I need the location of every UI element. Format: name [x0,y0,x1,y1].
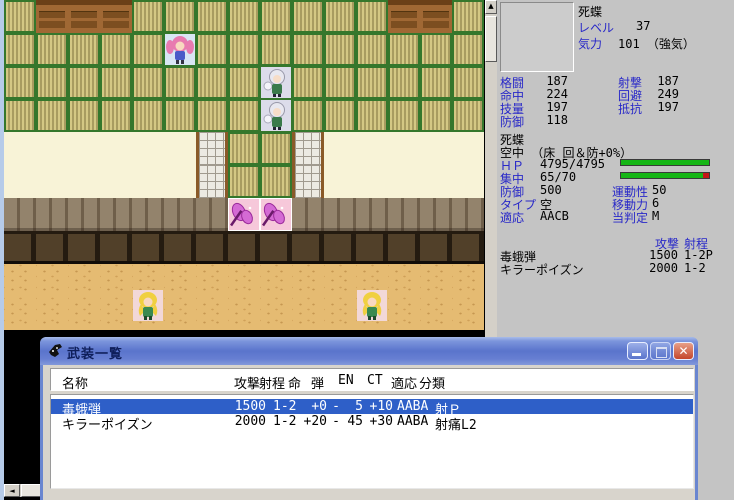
en-bar-empty [703,173,709,178]
map-tile-sand[interactable] [388,264,420,297]
weapon-window: 武装一覧 ✕ 名称攻撃射程命弾ENCT適応分類 毒蛾弾15001-2+0-5+1… [40,337,698,500]
map-tile-chest[interactable] [36,0,68,33]
detail-value: 50 [652,183,666,197]
map-tile-wall-base[interactable] [356,231,388,264]
map-tile-wall-base[interactable] [132,231,164,264]
map-tile-tatami[interactable] [324,0,356,33]
map-tile-tatami[interactable] [228,99,260,132]
map-tile-sand[interactable] [420,297,452,330]
cell-ammo: - [329,399,343,414]
map-tile-tatami[interactable] [228,165,260,198]
stat-value: 197 [643,100,679,114]
map-tile-tatami[interactable] [260,33,292,66]
map-tile-shoji[interactable] [164,132,196,165]
header-cell[interactable]: EN [338,373,354,388]
morale-label: 気力 [578,35,602,52]
stat-value: 187 [643,74,679,88]
map-tile-tatami[interactable] [68,33,100,66]
map-tile-tatami[interactable] [228,132,260,165]
weapon-summary-name: キラーポイズン [500,261,584,278]
map-tile-sand[interactable] [420,264,452,297]
cell-hit: +20 [299,414,327,429]
cell-class: 射痛L2 [435,414,515,433]
map-tile-tatami[interactable] [388,99,420,132]
map-tile-tatami[interactable] [4,99,36,132]
map-tile-sand[interactable] [4,297,36,330]
map-tile-wall-base[interactable] [68,231,100,264]
map-tile-tatami[interactable] [4,66,36,99]
map-tile-plank-wall[interactable] [132,198,164,231]
map-tile-shoji[interactable] [420,165,452,198]
map-tile-shoji[interactable] [324,132,356,165]
map-tile-tatami[interactable] [100,99,132,132]
en-bar [620,172,710,179]
weapon-list[interactable]: 毒蛾弾15001-2+0-5+10AABA射Ｐキラーポイズン20001-2+20… [50,394,694,489]
map-tile-shoji[interactable] [36,165,68,198]
map-tile-plank-wall[interactable] [4,198,36,231]
map-tile-wall-base[interactable] [260,231,292,264]
weapon-list-header: 名称攻撃射程命弾ENCT適応分類 [50,368,694,391]
unit-sprite-butterfly-2[interactable] [261,199,291,230]
map-tile-sand[interactable] [260,264,292,297]
map-tile-chest[interactable] [68,0,100,33]
map-tile-tatami[interactable] [132,66,164,99]
unit-name: 死蝶 [578,3,602,20]
map-tile-wall-base[interactable] [164,231,196,264]
map-tile-tatami[interactable] [68,66,100,99]
map-tile-tatami[interactable] [452,66,484,99]
map-tile-sand[interactable] [68,264,100,297]
cell-adapt: AABA [397,399,437,414]
map-tile-tatami[interactable] [292,0,324,33]
map-tile-lattice[interactable] [292,132,324,165]
map-tile-tatami[interactable] [196,33,228,66]
header-cell[interactable]: 射程 [259,373,285,392]
cell-en: 45 [345,414,363,429]
window-title: 武装一覧 [67,343,123,362]
map-tile-tatami[interactable] [260,132,292,165]
window-left-border [0,0,4,500]
unit-sprite-fairy-2[interactable] [357,290,387,321]
map-tile-wall-base[interactable] [452,231,484,264]
map-tile-plank-wall[interactable] [68,198,100,231]
map-tile-sand[interactable] [4,264,36,297]
unit-sprite-ghost-2[interactable] [261,100,291,131]
map-tile-tatami[interactable] [36,33,68,66]
weapon-summary-range: 1-2 [684,261,706,275]
map-tile-tatami[interactable] [196,0,228,33]
map-tile-tatami[interactable] [356,33,388,66]
map-tile-shoji[interactable] [388,132,420,165]
battle-map[interactable] [4,0,485,330]
map-tile-tatami[interactable] [196,66,228,99]
map-tile-plank-wall[interactable] [420,198,452,231]
map-tile-sand[interactable] [196,297,228,330]
maximize-button[interactable] [650,342,671,360]
header-cell[interactable]: 攻撃 [234,373,260,392]
cell-hit: +0 [299,399,327,414]
map-tile-sand[interactable] [36,264,68,297]
weapon-summary-range: 1-2P [684,248,713,262]
cell-en: 5 [345,399,363,414]
map-tile-plank-wall[interactable] [324,198,356,231]
map-tile-tatami[interactable] [292,33,324,66]
unit-sprite-fairy-1[interactable] [133,290,163,321]
map-tile-lattice[interactable] [292,165,324,198]
map-tile-shoji[interactable] [36,132,68,165]
hp-bar [620,159,710,166]
map-tile-wall-base[interactable] [4,231,36,264]
unit-sprite-butterfly-1[interactable] [229,199,259,230]
stat-value: 118 [525,113,568,127]
map-tile-wall-base[interactable] [100,231,132,264]
map-tile-tatami[interactable] [36,99,68,132]
map-tile-tatami[interactable] [420,99,452,132]
stat-label: 防御 [500,113,524,130]
map-tile-shoji[interactable] [388,165,420,198]
map-tile-wall-base[interactable] [324,231,356,264]
unit-sprite-pink-girl[interactable] [165,34,195,65]
detail-value: 500 [540,183,562,197]
map-tile-tatami[interactable] [132,33,164,66]
header-cell[interactable]: 弾 [311,373,324,392]
stat-value: 197 [525,100,568,114]
unit-sprite-ghost-1[interactable] [261,67,291,98]
map-tile-shoji[interactable] [164,165,196,198]
map-tile-tatami[interactable] [292,66,324,99]
map-tile-plank-wall[interactable] [292,198,324,231]
stat-value: 249 [643,87,679,101]
level-value: 37 [636,19,650,33]
stat-value: 187 [525,74,568,88]
map-tile-tatami[interactable] [196,99,228,132]
header-cell[interactable]: 適応 [391,373,417,392]
map-tile-tatami[interactable] [420,66,452,99]
map-tile-tatami[interactable] [260,0,292,33]
map-tile-wall-base[interactable] [388,231,420,264]
stat-value: 224 [525,87,568,101]
map-tile-tatami[interactable] [36,66,68,99]
map-tile-sand[interactable] [260,297,292,330]
map-tile-sand[interactable] [36,297,68,330]
detail-label: 当判定 [612,209,648,226]
map-tile-tatami[interactable] [356,0,388,33]
map-tile-sand[interactable] [292,297,324,330]
map-tile-tatami[interactable] [228,33,260,66]
v-scroll-thumb[interactable] [485,16,497,62]
map-tile-shoji[interactable] [452,165,484,198]
detail-value: 6 [652,196,659,210]
detail-value: M [652,209,659,223]
map-tile-sand[interactable] [228,264,260,297]
header-cell[interactable]: 命 [288,373,301,392]
map-tile-chest[interactable] [388,0,420,33]
map-tile-sand[interactable] [164,264,196,297]
map-tile-tatami[interactable] [164,66,196,99]
map-tile-tatami[interactable] [324,66,356,99]
map-tile-shoji[interactable] [356,132,388,165]
map-tile-plank-wall[interactable] [388,198,420,231]
map-tile-sand[interactable] [100,297,132,330]
map-tile-wall-base[interactable] [196,231,228,264]
weapon-window-icon [47,342,64,359]
window-titlebar[interactable]: 武装一覧 ✕ [40,337,698,365]
detail-value: AACB [540,209,569,223]
scroll-left-button[interactable]: ◄ [4,484,20,497]
map-tile-tatami[interactable] [388,66,420,99]
map-tile-tatami[interactable] [452,33,484,66]
map-tile-sand[interactable] [324,264,356,297]
map-tile-wall-base[interactable] [228,231,260,264]
header-cell[interactable]: CT [367,373,383,388]
minimize-button[interactable] [627,342,648,360]
map-tile-sand[interactable] [196,264,228,297]
map-tile-plank-wall[interactable] [196,198,228,231]
map-tile-plank-wall[interactable] [356,198,388,231]
map-tile-sand[interactable] [324,297,356,330]
map-tile-sand[interactable] [100,264,132,297]
unit-portrait [500,2,574,72]
weapon-summary-atk: 2000 [638,261,678,275]
map-tile-lattice[interactable] [196,165,228,198]
cell-ammo: - [329,414,343,429]
map-tile-shoji[interactable] [100,132,132,165]
map-tile-plank-wall[interactable] [164,198,196,231]
weapon-row[interactable]: キラーポイズン20001-2+20-45+30AABA射痛L2 [51,414,693,429]
map-tile-shoji[interactable] [132,132,164,165]
scroll-up-button[interactable]: ▲ [485,0,497,14]
map-tile-wall-base[interactable] [420,231,452,264]
cell-adapt: AABA [397,414,437,429]
map-tile-tatami[interactable] [4,33,36,66]
map-tile-wall-base[interactable] [292,231,324,264]
map-tile-tatami[interactable] [324,99,356,132]
header-cell[interactable]: 分類 [419,373,445,392]
morale-value: 101 （強気） [618,35,695,52]
detail-label: 適応 [500,209,524,226]
map-tile-sand[interactable] [164,297,196,330]
cell-atk: 1500 [221,399,266,414]
map-tile-plank-wall[interactable] [100,198,132,231]
map-tile-sand[interactable] [228,297,260,330]
map-tile-shoji[interactable] [4,132,36,165]
map-tile-tatami[interactable] [452,99,484,132]
map-tile-tatami[interactable] [228,66,260,99]
map-tile-tatami[interactable] [388,33,420,66]
map-tile-tatami[interactable] [260,165,292,198]
map-tile-shoji[interactable] [4,165,36,198]
cell-ct: +30 [365,414,393,429]
map-tile-lattice[interactable] [196,132,228,165]
map-tile-tatami[interactable] [292,99,324,132]
map-tile-plank-wall[interactable] [36,198,68,231]
map-tile-tatami[interactable] [164,99,196,132]
weapon-summary-atk: 1500 [638,248,678,262]
cell-ct: +10 [365,399,393,414]
map-tile-shoji[interactable] [324,165,356,198]
weapon-row[interactable]: 毒蛾弾15001-2+0-5+10AABA射Ｐ [51,399,693,414]
close-button[interactable]: ✕ [673,342,694,360]
map-tile-shoji[interactable] [68,132,100,165]
map-tile-chest[interactable] [420,0,452,33]
cell-name: キラーポイズン [62,414,153,433]
map-tile-shoji[interactable] [420,132,452,165]
map-tile-tatami[interactable] [100,33,132,66]
map-tile-tatami[interactable] [4,0,36,33]
map-tile-wall-base[interactable] [36,231,68,264]
map-tile-shoji[interactable] [68,165,100,198]
map-tile-chest[interactable] [100,0,132,33]
map-tile-tatami[interactable] [164,0,196,33]
map-tile-sand[interactable] [452,264,484,297]
map-tile-tatami[interactable] [324,33,356,66]
map-tile-shoji[interactable] [452,132,484,165]
map-tile-tatami[interactable] [132,99,164,132]
map-tile-tatami[interactable] [68,99,100,132]
map-tile-tatami[interactable] [420,33,452,66]
map-tile-tatami[interactable] [356,99,388,132]
cell-atk: 2000 [221,414,266,429]
map-tile-sand[interactable] [292,264,324,297]
map-tile-sand[interactable] [388,297,420,330]
stat-label: 抵抗 [618,100,642,117]
map-tile-shoji[interactable] [100,165,132,198]
map-tile-sand[interactable] [452,297,484,330]
map-tile-tatami[interactable] [100,66,132,99]
map-tile-tatami[interactable] [452,0,484,33]
header-cell[interactable]: 名称 [62,373,88,392]
map-tile-plank-wall[interactable] [452,198,484,231]
map-tile-tatami[interactable] [132,0,164,33]
map-tile-shoji[interactable] [132,165,164,198]
level-label: レベル [578,19,614,36]
map-tile-sand[interactable] [68,297,100,330]
map-tile-tatami[interactable] [356,66,388,99]
map-tile-shoji[interactable] [356,165,388,198]
en-value: 65/70 [540,170,576,184]
map-tile-tatami[interactable] [228,0,260,33]
hp-value: 4795/4795 [540,157,605,171]
